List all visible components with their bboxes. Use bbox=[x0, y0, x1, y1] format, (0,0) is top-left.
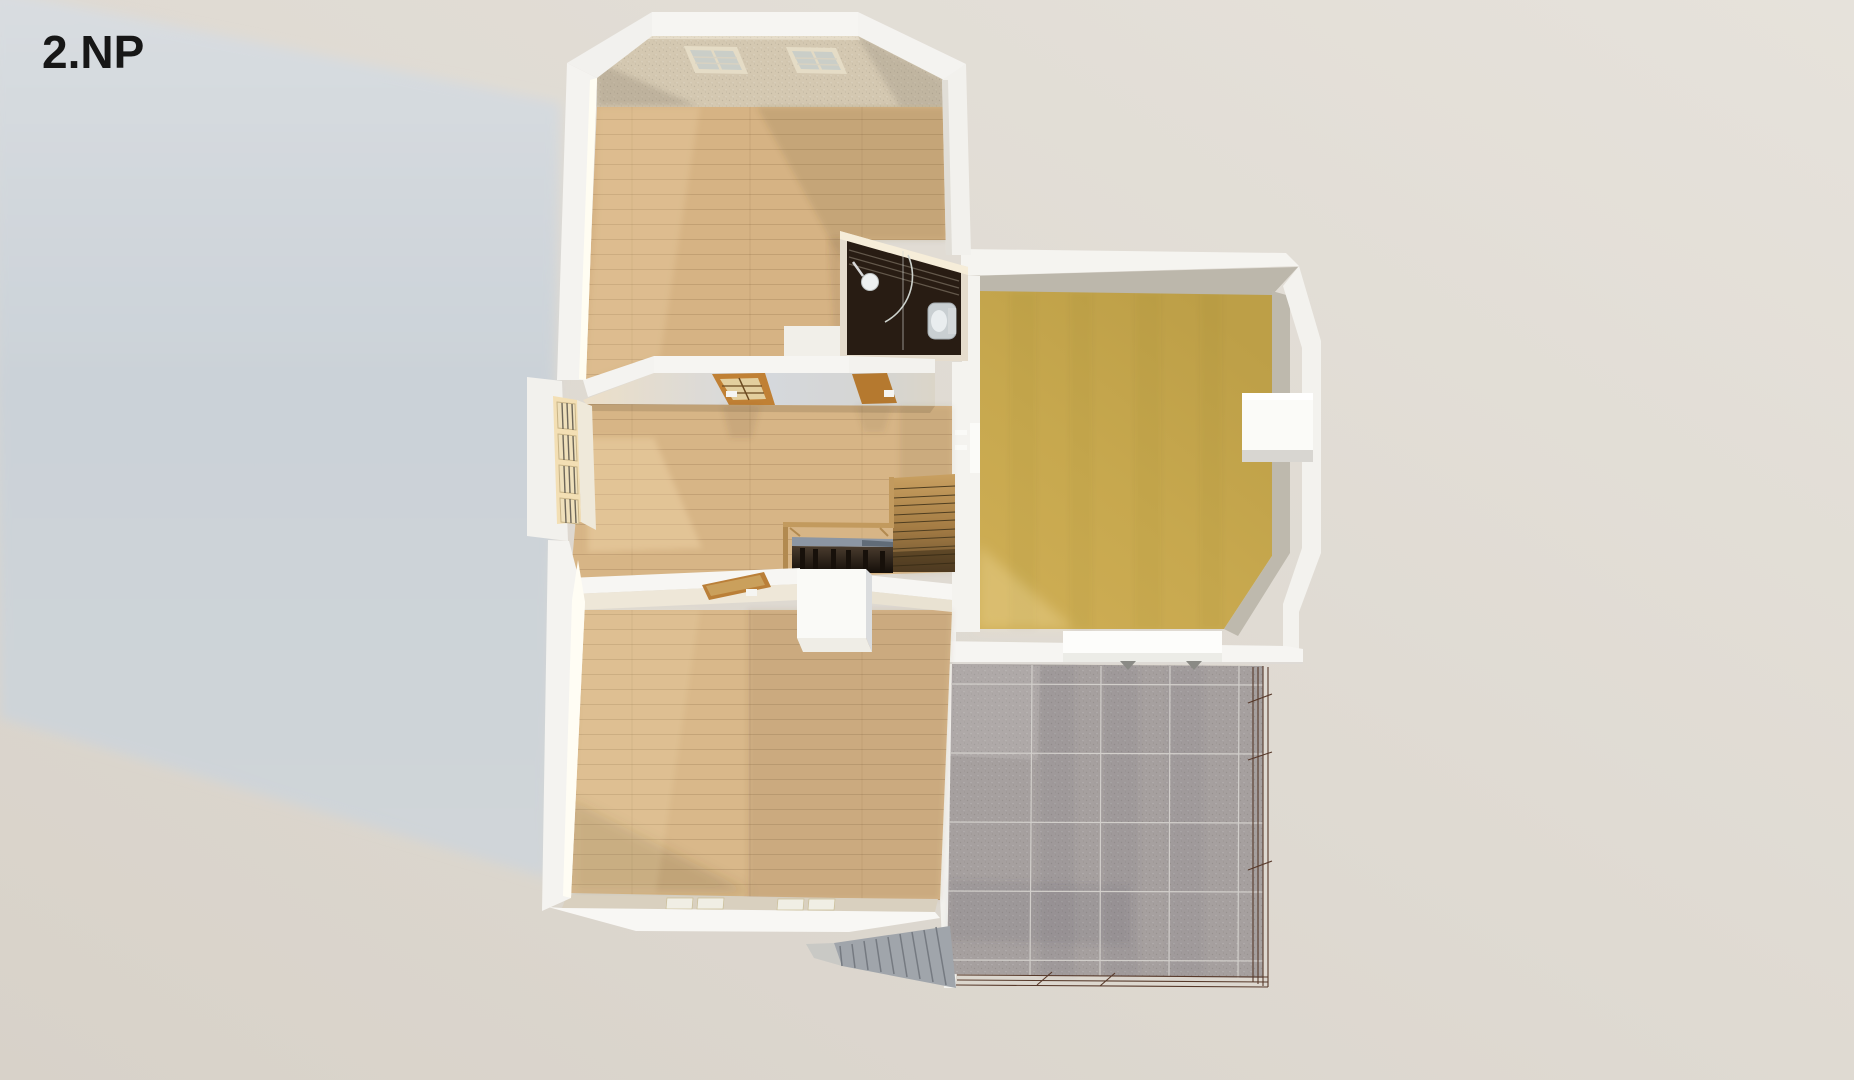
svg-text:2.NP: 2.NP bbox=[42, 26, 144, 78]
